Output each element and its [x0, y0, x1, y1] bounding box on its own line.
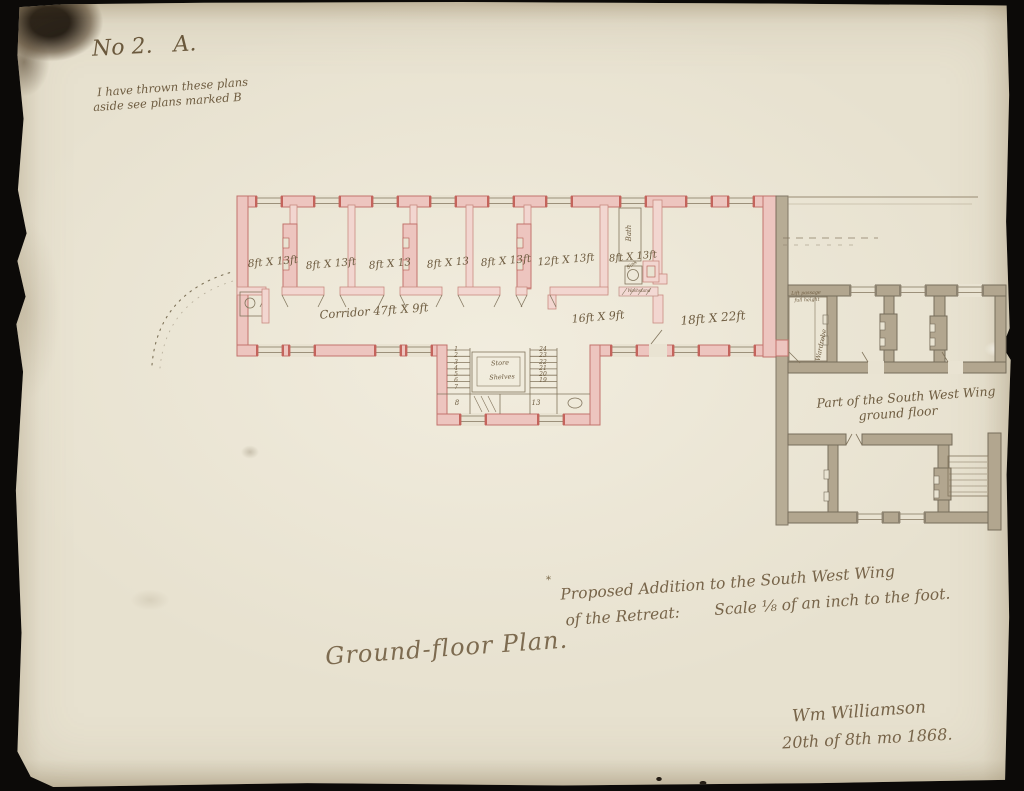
new-addition-plan [152, 195, 776, 426]
lift-lobby [789, 297, 827, 363]
sink-and-fixtures [619, 261, 659, 296]
existing-wing-plan [776, 196, 1006, 530]
dashed-path-arc [152, 272, 233, 368]
chimney-breasts [283, 224, 531, 288]
scanned-drawing-canvas: No 2. A. I have thrown these plans aside… [0, 0, 1024, 791]
floor-plan-drawing [0, 0, 1024, 791]
bath-closet [619, 208, 641, 261]
stair-numbers-right: 24 23 22 21 20 19 [536, 347, 550, 385]
stair-numbers-left: 1 2 3 4 5 6 7 [450, 347, 462, 391]
corridor-front-wall [237, 287, 608, 309]
external-stair [948, 456, 988, 496]
